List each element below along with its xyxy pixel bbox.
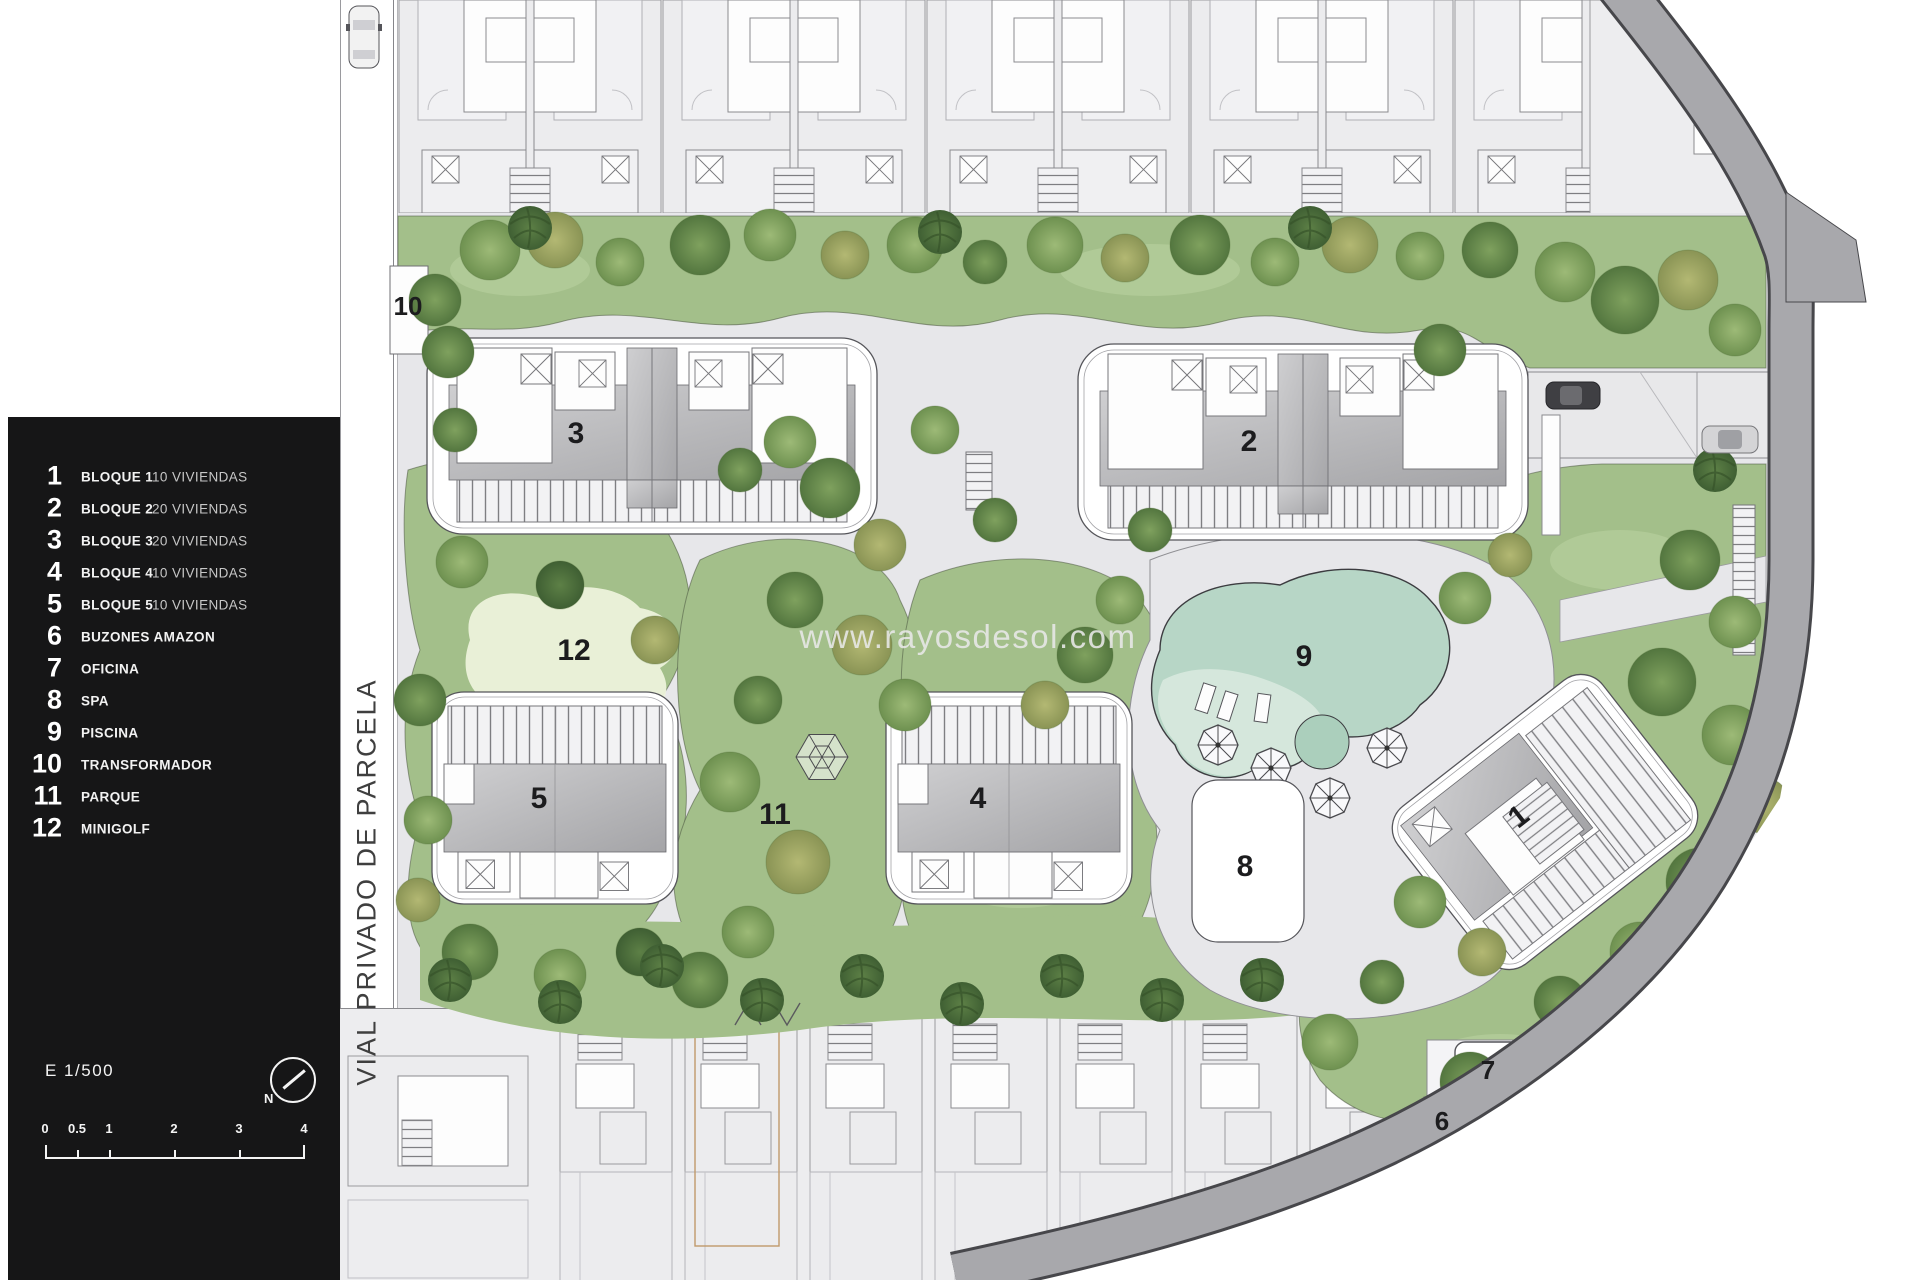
label-oficina: 7	[1481, 1057, 1495, 1083]
legend-item: 7OFICINA	[8, 653, 340, 685]
site-plan-page: www.rayosdesol.com VIAL PRIVADO DE PARCE…	[0, 0, 1920, 1280]
label-bloque-2: 2	[1241, 427, 1258, 457]
north-arrow: N	[270, 1057, 316, 1103]
top-neighbour-houses	[398, 0, 1788, 226]
label-transformador: 10	[394, 293, 423, 319]
legend-item: 10TRANSFORMADOR	[8, 749, 340, 781]
label-spa: 8	[1237, 852, 1254, 882]
building-5	[432, 692, 678, 904]
north-letter: N	[264, 1091, 273, 1106]
label-bloque-5: 5	[531, 784, 548, 814]
scale-bar: 0 0.5 1 2 3 4	[45, 1121, 305, 1159]
legend-item: 9PISCINA	[8, 717, 340, 749]
legend-item: 12MINIGOLF	[8, 813, 340, 845]
scale-ratio: E 1/500	[45, 1061, 114, 1081]
road-name-label: VIAL PRIVADO DE PARCELA	[352, 678, 383, 1085]
legend-item: 2BLOQUE 220 VIVIENDAS	[8, 493, 340, 525]
car-silver	[1702, 426, 1758, 453]
label-parque: 11	[759, 800, 791, 830]
label-bloque-4: 4	[970, 784, 987, 814]
legend-item: 1BLOQUE 110 VIVIENDAS	[8, 461, 340, 493]
label-bloque-3: 3	[568, 419, 585, 449]
legend-panel: 1BLOQUE 110 VIVIENDAS 2BLOQUE 220 VIVIEN…	[8, 417, 340, 1280]
legend-item: 5BLOQUE 510 VIVIENDAS	[8, 589, 340, 621]
legend-item: 8SPA	[8, 685, 340, 717]
watermark: www.rayosdesol.com	[800, 618, 1137, 656]
legend-item: 6BUZONES AMAZON	[8, 621, 340, 653]
label-minigolf: 12	[557, 636, 590, 666]
parked-car	[346, 6, 382, 68]
north-gate	[1542, 415, 1560, 535]
legend-item: 11PARQUE	[8, 781, 340, 813]
label-buzones: 6	[1435, 1108, 1449, 1134]
legend-item: 3BLOQUE 320 VIVIENDAS	[8, 525, 340, 557]
car-dark	[1546, 382, 1600, 409]
legend-item: 4BLOQUE 410 VIVIENDAS	[8, 557, 340, 589]
label-piscina: 9	[1296, 642, 1313, 672]
